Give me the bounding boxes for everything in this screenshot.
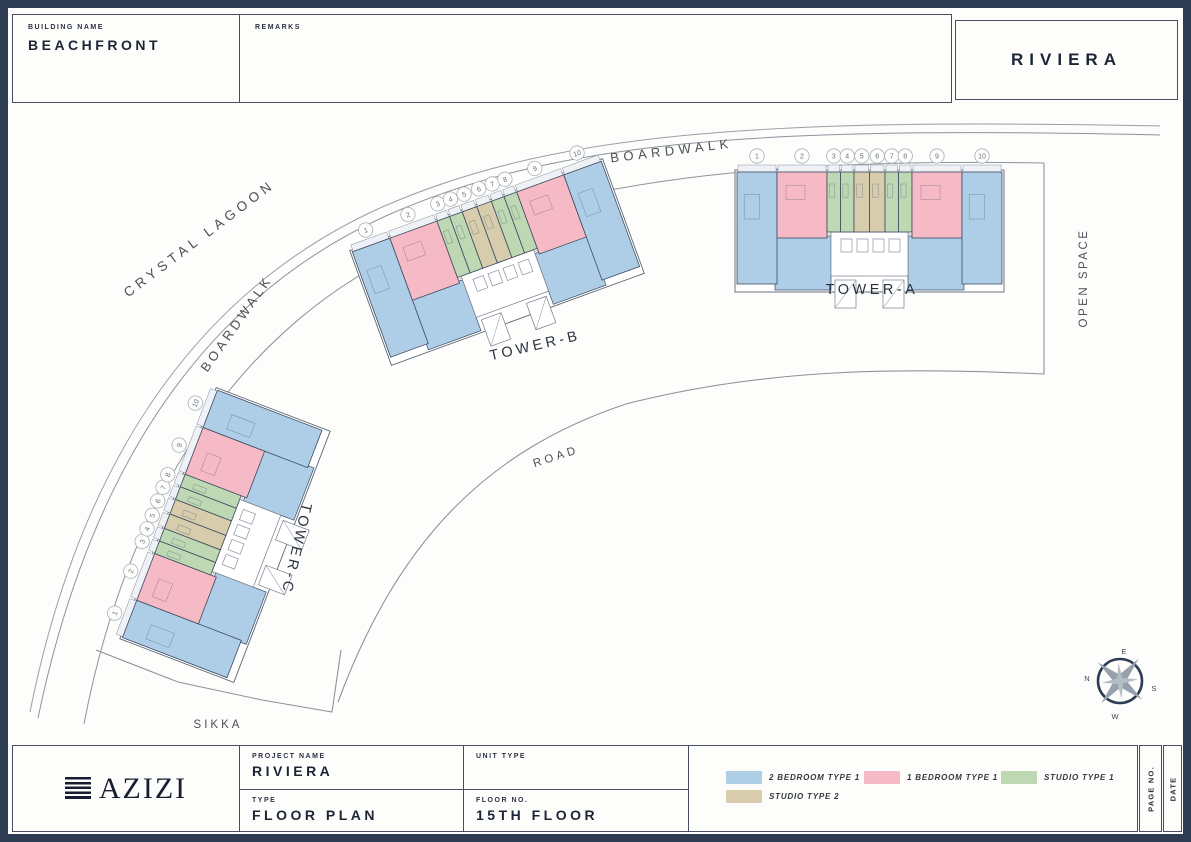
balcony [842,165,854,172]
unit-number: 6 [875,154,879,161]
legend-swatch-1-bedroom-type-1 [864,771,900,784]
project-name-label: PROJECT NAME [252,753,463,760]
unit-number: 2 [800,154,804,161]
legend-label: STUDIO TYPE 1 [1044,773,1114,782]
project-info-block: PROJECT NAME RIVIERA UNIT TYPE TYPE FLOO… [239,745,689,832]
unit-1 [737,172,777,284]
balcony [913,165,961,172]
compass: E N S W [1079,640,1161,722]
unit-number: 5 [860,154,864,161]
balcony [900,165,912,172]
legend-swatch-studio-type-2 [726,790,762,803]
road-label: ROAD [532,444,581,470]
azizi-logo-text: AZIZI [99,772,187,806]
legend-swatch-studio-type-1 [1001,771,1037,784]
floor-no-label: FLOOR NO. [476,797,689,804]
floor-no-value: 15TH FLOOR [476,807,689,823]
page-no-column: PAGE NO. [1139,745,1162,832]
crystal-lagoon-label: CRYSTAL LAGOON [121,177,278,300]
open-space-label: OPEN SPACE [1078,229,1090,328]
compass-e: E [1121,647,1126,656]
unit-5 [854,172,870,232]
project-name-cell: PROJECT NAME RIVIERA [240,746,463,789]
tower-a-label: TOWER-A [826,282,919,298]
compass-s: S [1151,684,1156,693]
unit-8 [899,172,913,232]
legend-block: 2 BEDROOM TYPE 11 BEDROOM TYPE 1STUDIO T… [688,745,1138,832]
balcony [886,165,898,172]
lower-unit-area [775,236,831,290]
type-label: TYPE [252,797,463,804]
floor-no-cell: FLOOR NO. 15TH FLOOR [464,790,689,833]
type-value: FLOOR PLAN [252,807,463,823]
unit-number: 8 [903,154,907,161]
azizi-logo-icon [65,777,91,801]
unit-9 [912,172,962,238]
legend-label: 1 BEDROOM TYPE 1 [907,773,998,782]
unit-7 [885,172,899,232]
unit-number: 3 [832,154,836,161]
date-column: DATE [1163,745,1182,832]
unit-number: 4 [845,154,849,161]
unit-2 [777,172,827,238]
unit-type-cell: UNIT TYPE [464,746,689,789]
unit-number: 7 [890,154,894,161]
tower-b-plan: 12345678910 [342,139,649,381]
floor-plan-sheet: { "header": { "building_name_label": "BU… [0,0,1191,842]
page-no-label: PAGE NO. [1146,766,1155,812]
date-label: DATE [1168,776,1177,801]
legend-item-studio-type-1: STUDIO TYPE 1 [1001,771,1114,784]
unit-type-label: UNIT TYPE [476,753,689,760]
unit-number: 10 [978,154,986,161]
balcony [963,165,1001,172]
compass-n: N [1084,674,1089,683]
boardwalk-left-label: BOARDWALK [197,272,275,374]
unit-3 [827,172,841,232]
legend-swatch-2-bedroom-type-1 [726,771,762,784]
sikka-label: SIKKA [194,719,243,731]
sheet-page: BUILDING NAME BEACHFRONT REMARKS RIVIERA… [8,8,1183,834]
legend-item-2-bedroom-type-1: 2 BEDROOM TYPE 1 [726,771,860,784]
balcony [828,165,840,172]
unit-4 [841,172,855,232]
brand-block: AZIZI [12,745,240,832]
type-cell: TYPE FLOOR PLAN [240,790,463,833]
unit-10 [962,172,1002,284]
boardwalk-top-label: BOARDWALK [609,136,733,166]
compass-w: W [1111,712,1119,721]
unit-6 [870,172,886,232]
legend-item-1-bedroom-type-1: 1 BEDROOM TYPE 1 [864,771,998,784]
legend-label: 2 BEDROOM TYPE 1 [769,773,860,782]
project-name-value: RIVIERA [252,763,463,779]
balcony [778,165,826,172]
legend-item-studio-type-2: STUDIO TYPE 2 [726,790,839,803]
legend-label: STUDIO TYPE 2 [769,792,839,801]
balcony [738,165,776,172]
balcony [855,165,869,172]
balcony [871,165,885,172]
unit-number: 1 [755,154,759,161]
legend-items: 2 BEDROOM TYPE 11 BEDROOM TYPE 1STUDIO T… [689,746,1137,831]
unit-number: 9 [935,154,939,161]
core-area [831,232,908,276]
site-plan: 12345678910 12345678910 12345678910 TOWE… [8,8,1183,834]
